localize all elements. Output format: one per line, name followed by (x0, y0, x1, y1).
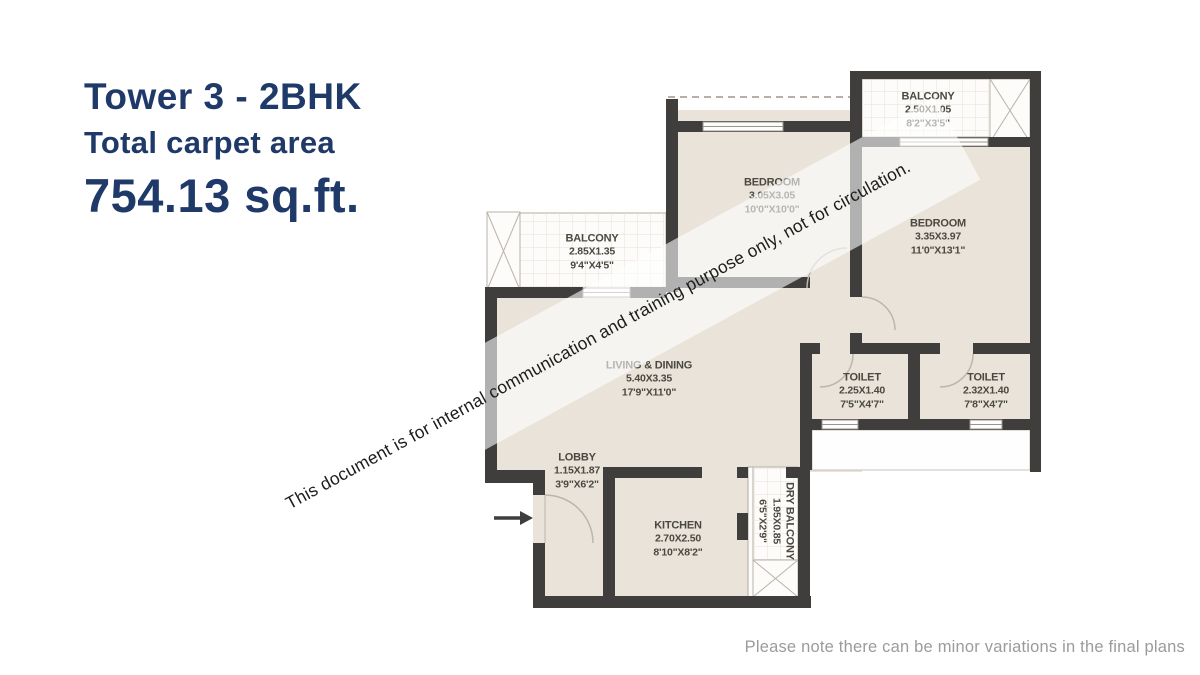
title-tower: Tower 3 - 2BHK (84, 74, 362, 120)
page: Tower 3 - 2BHK Total carpet area 754.13 … (0, 0, 1200, 675)
title-carpet-area-label: Total carpet area (84, 120, 362, 166)
title-carpet-area-value: 754.13 sq.ft. (84, 166, 362, 226)
page-title: Tower 3 - 2BHK Total carpet area 754.13 … (84, 74, 362, 226)
entry-arrow-icon (494, 511, 533, 525)
footer-note: Please note there can be minor variation… (745, 638, 1185, 657)
